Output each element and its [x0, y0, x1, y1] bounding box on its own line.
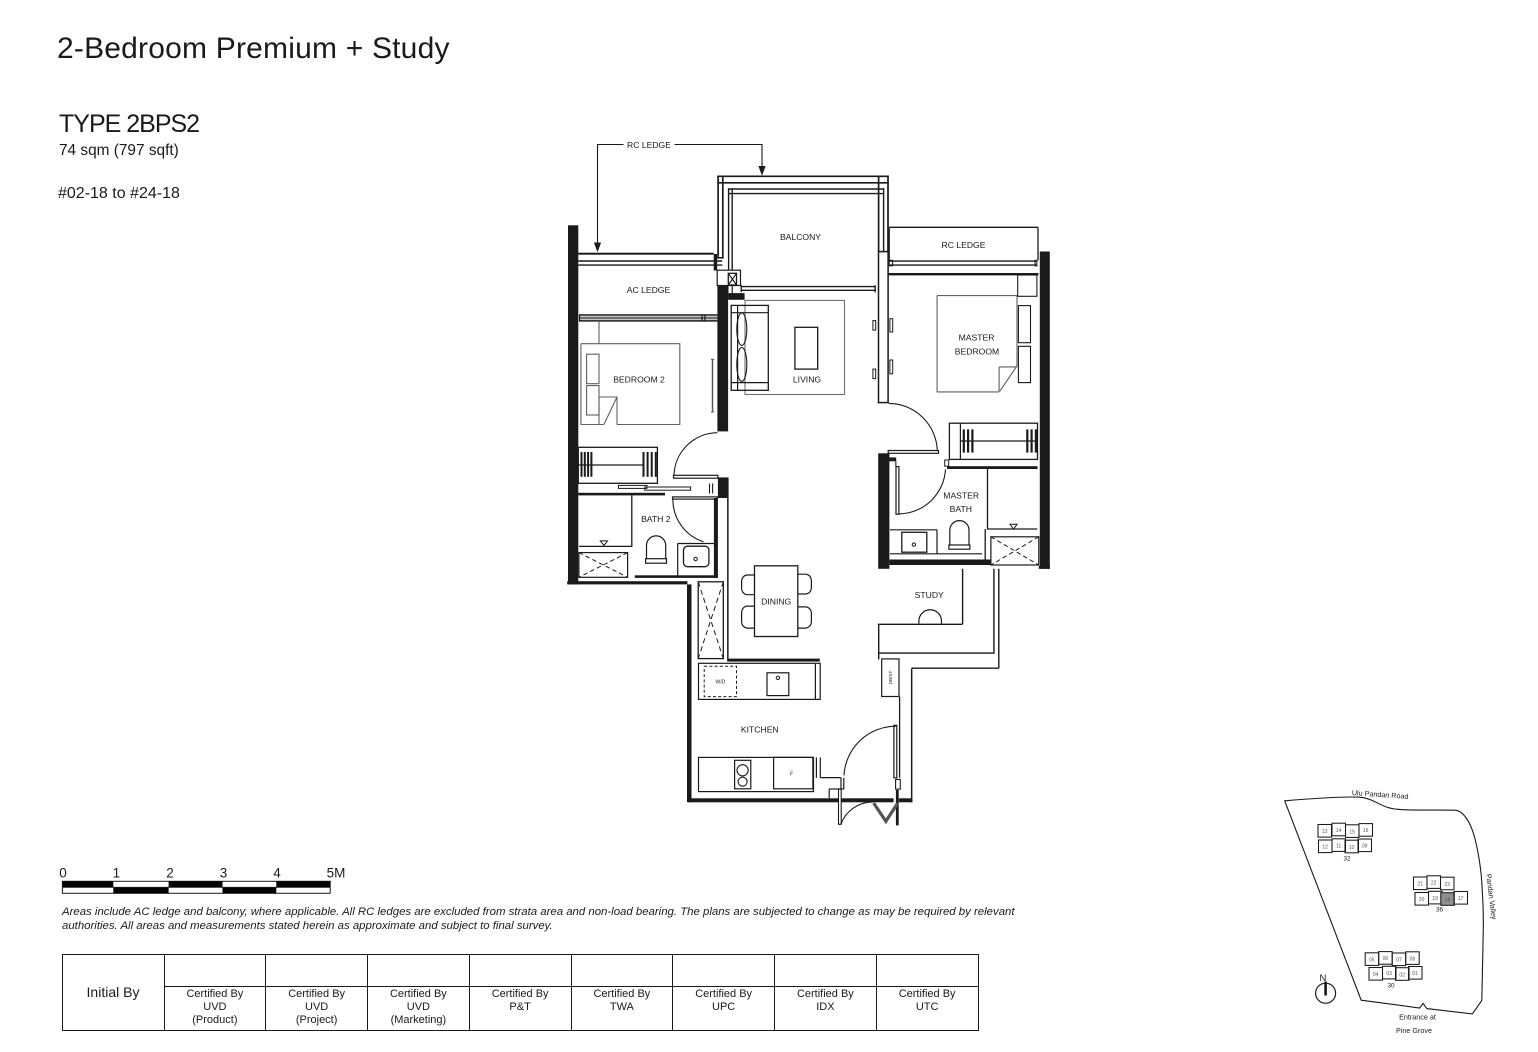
svg-text:BEDROOM 2: BEDROOM 2	[613, 375, 665, 385]
svg-text:01: 01	[1412, 971, 1418, 977]
svg-text:36: 36	[1436, 907, 1444, 914]
svg-text:3: 3	[220, 866, 228, 881]
svg-text:04: 04	[1373, 972, 1379, 978]
svg-text:15: 15	[1349, 829, 1355, 835]
svg-text:W/D: W/D	[716, 679, 726, 685]
svg-text:BATH: BATH	[950, 504, 972, 514]
svg-text:RC LEDGE: RC LEDGE	[627, 140, 671, 150]
svg-text:MASTER: MASTER	[959, 332, 995, 342]
svg-text:LIVING: LIVING	[793, 375, 821, 385]
svg-text:AC LEDGE: AC LEDGE	[627, 285, 671, 295]
svg-text:RC LEDGE: RC LEDGE	[942, 240, 986, 250]
svg-text:22: 22	[1431, 880, 1437, 886]
svg-text:02: 02	[1399, 972, 1405, 978]
svg-text:Ulu Pandan Road: Ulu Pandan Road	[1352, 788, 1409, 801]
svg-text:5M: 5M	[327, 866, 346, 881]
svg-text:MASTER: MASTER	[943, 490, 979, 500]
svg-text:F: F	[790, 772, 793, 778]
svg-text:03: 03	[1386, 971, 1392, 977]
svg-text:Entrance at: Entrance at	[1399, 1013, 1436, 1022]
svg-text:Pine Grove: Pine Grove	[1396, 1026, 1432, 1035]
svg-text:07: 07	[1396, 958, 1402, 964]
svg-text:16: 16	[1363, 828, 1369, 834]
svg-text:DB/ST: DB/ST	[888, 671, 893, 685]
svg-text:BALCONY: BALCONY	[780, 232, 821, 242]
svg-text:05: 05	[1369, 957, 1375, 963]
svg-text:Pandan Valley: Pandan Valley	[1484, 873, 1499, 920]
svg-text:17: 17	[1458, 896, 1464, 902]
svg-text:30: 30	[1388, 983, 1396, 990]
svg-text:10: 10	[1349, 845, 1355, 851]
svg-text:09: 09	[1362, 844, 1368, 850]
svg-text:23: 23	[1444, 882, 1450, 888]
svg-text:DINING: DINING	[761, 596, 791, 606]
svg-text:14: 14	[1336, 828, 1342, 834]
svg-text:BATH 2: BATH 2	[641, 514, 671, 524]
svg-text:19: 19	[1432, 896, 1438, 902]
svg-text:2: 2	[166, 866, 174, 881]
svg-text:STUDY: STUDY	[915, 590, 944, 600]
svg-text:13: 13	[1322, 829, 1328, 835]
svg-text:1: 1	[113, 866, 121, 881]
svg-text:32: 32	[1344, 856, 1352, 863]
svg-text:20: 20	[1419, 897, 1425, 903]
svg-text:11: 11	[1336, 843, 1341, 849]
svg-text:08: 08	[1410, 956, 1416, 962]
svg-text:12: 12	[1322, 845, 1328, 851]
svg-text:KITCHEN: KITCHEN	[741, 725, 779, 735]
svg-text:21: 21	[1417, 882, 1423, 888]
svg-text:BEDROOM: BEDROOM	[955, 346, 999, 356]
svg-text:18: 18	[1445, 897, 1451, 903]
svg-text:0: 0	[59, 866, 67, 881]
svg-text:4: 4	[273, 866, 281, 881]
svg-text:06: 06	[1383, 956, 1389, 962]
